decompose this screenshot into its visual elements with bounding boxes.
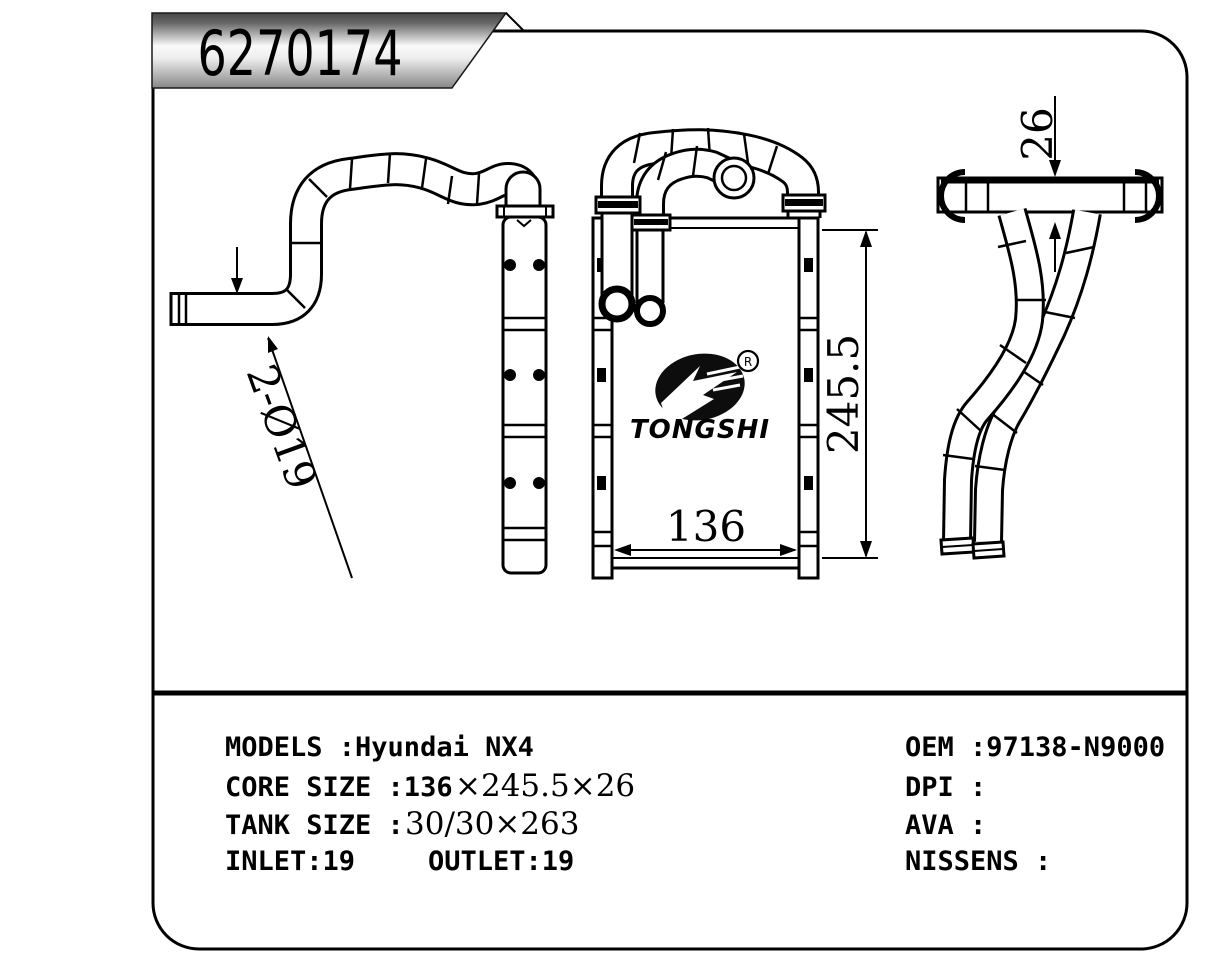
spec-nissens: NISSENS : [905,846,1051,877]
spec-models: MODELS :Hyundai NX4 [225,732,534,763]
spec-inlet: INLET:19 [225,846,355,877]
spec-ava: AVA : [905,810,986,841]
dim-depth-label: 26 [1013,107,1062,160]
spec-oem: OEM :97138-N9000 [905,732,1165,763]
technical-drawing: 6270174 [0,0,1219,968]
open-pipe-end [714,158,754,198]
spec-core-value: ×245.5×26 [455,768,635,804]
dim-width-label: 136 [666,502,746,551]
logo-wordmark: TONGSHI [630,415,770,445]
spec-dpi: DPI : [905,772,986,803]
cap-arch [506,172,540,207]
spec-outlet: OUTLET:19 [428,846,574,877]
drawing-sheet: 6270174 [0,0,1219,968]
dim-height-label: 245.5 [819,334,868,454]
spec-tank-value: 30/30×263 [405,806,579,842]
spec-tank-label: TANK SIZE : [225,810,404,841]
part-number: 6270174 [198,17,403,90]
cap-flange [497,206,553,217]
registered-mark: R [744,355,752,369]
side-tank-column [497,172,553,573]
spec-core-label: CORE SIZE :136 [225,772,453,803]
banner-notch-line [506,13,524,31]
